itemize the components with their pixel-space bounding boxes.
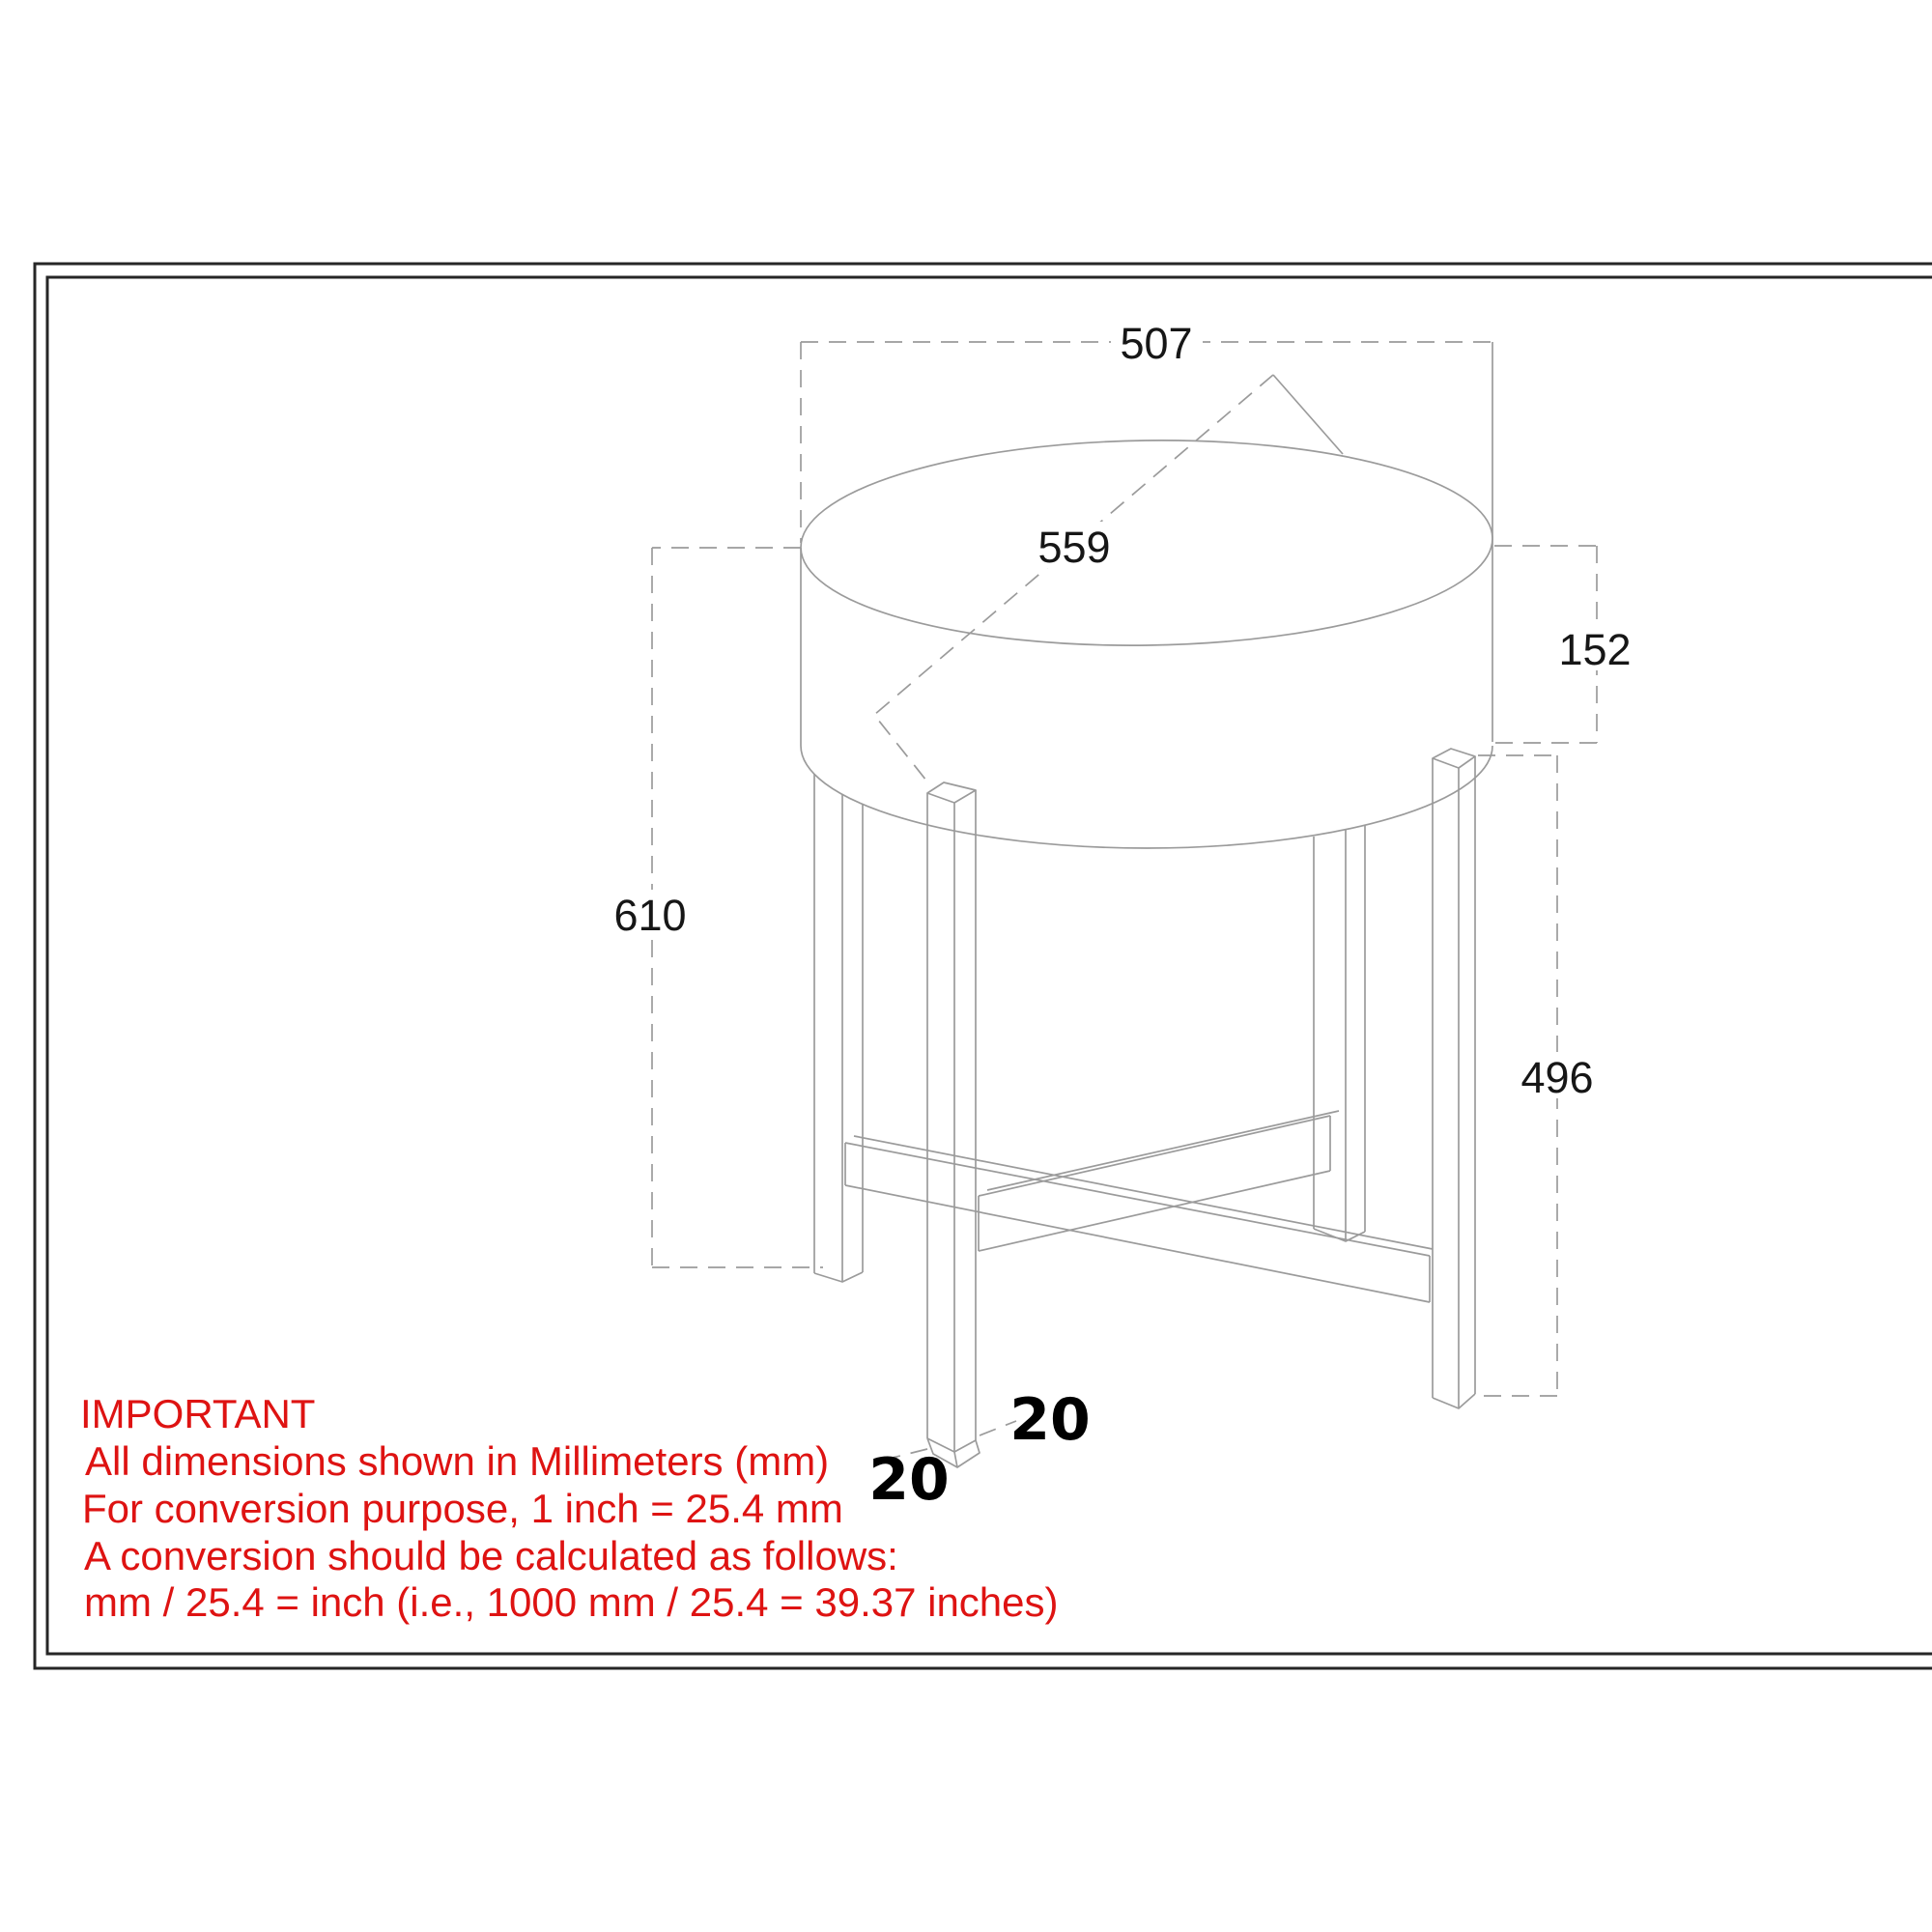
leg-back [1314, 825, 1365, 1241]
tabletop-bottom-arc [801, 746, 1492, 848]
dimension-annotations: 507 559 152 610 [603, 318, 1642, 1514]
side-table-drawing [800, 436, 1494, 1467]
dim-507-label: 507 [1120, 319, 1192, 368]
note-line-4: mm / 25.4 = inch (i.e., 1000 mm / 25.4 =… [84, 1579, 1059, 1625]
technical-drawing-sheet: 507 559 152 610 [0, 0, 1932, 1932]
tabletop-top-ellipse [800, 436, 1494, 650]
stretcher-beam-front-back [979, 1111, 1339, 1251]
leg-rear-right-bottom [1433, 1394, 1475, 1408]
note-line-3: A conversion should be calculated as fol… [84, 1533, 898, 1578]
dim-610: 610 [603, 548, 823, 1267]
page: { "page": { "background": "#ffffff" }, "… [0, 0, 1932, 1932]
dim-20-left-label: 20 [868, 1446, 950, 1514]
leg-rear-left-bottom [814, 1272, 863, 1282]
dim-507: 507 [801, 318, 1492, 543]
dim-20-right-label: 20 [1009, 1386, 1091, 1454]
dim-20-left: 20 [868, 1446, 950, 1514]
dim-496-label: 496 [1520, 1053, 1593, 1102]
dim-559: 559 [874, 375, 1343, 785]
leg-front-left [927, 782, 980, 1467]
leg-front-left-top-face [927, 782, 976, 803]
dim-496: 496 [1478, 755, 1605, 1396]
leg-rear-right [1433, 749, 1475, 1408]
note-line-1: All dimensions shown in Millimeters (mm) [85, 1438, 829, 1484]
dim-559-label: 559 [1037, 523, 1110, 572]
stretcher-beam-left-right [845, 1136, 1433, 1302]
dim-559-arrow [1273, 375, 1343, 454]
dim-152: 152 [1494, 546, 1642, 743]
dim-610-label: 610 [613, 891, 686, 940]
leg-rear-left [814, 774, 863, 1282]
leg-rear-right-top-face [1433, 749, 1475, 768]
dim-20-right: 20 [980, 1386, 1091, 1454]
note-line-2: For conversion purpose, 1 inch = 25.4 mm [82, 1486, 843, 1531]
note-title: IMPORTANT [80, 1391, 315, 1436]
dim-152-label: 152 [1558, 625, 1631, 674]
dim-559-line [874, 375, 1273, 785]
tabletop-cylinder [800, 436, 1494, 848]
